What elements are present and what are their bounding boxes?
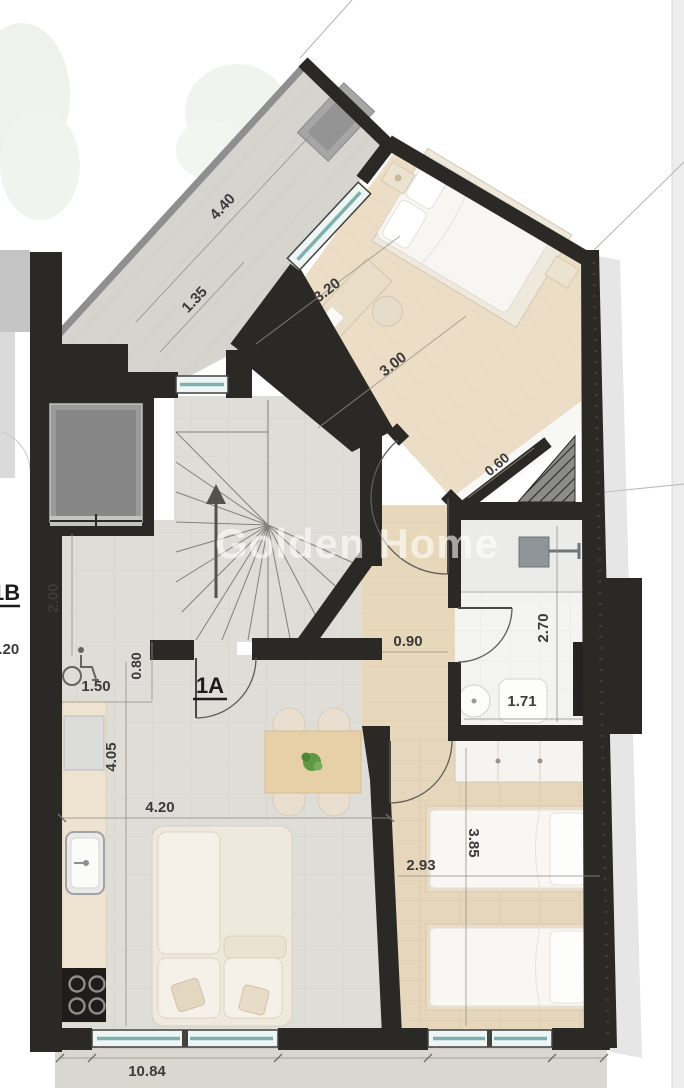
kitchen-sink bbox=[66, 832, 104, 894]
dim-bathroom-width: 1.71 bbox=[507, 693, 536, 710]
stairwell-window bbox=[176, 376, 228, 393]
dim-hall-length: 2.00 bbox=[45, 583, 62, 612]
dim-living-width: 4.20 bbox=[145, 799, 174, 816]
dim-bedroom2-width: 2.93 bbox=[406, 857, 435, 874]
bedroom2-window bbox=[428, 1030, 552, 1047]
single-bed bbox=[426, 924, 594, 1010]
dim-bathroom-length: 2.70 bbox=[535, 613, 552, 642]
unit-label-neighbor: 1B bbox=[0, 580, 20, 605]
dim-hall-opening: 0.80 bbox=[128, 652, 144, 679]
single-bed bbox=[426, 806, 594, 892]
fridge bbox=[64, 716, 104, 770]
watermark: Golden Home bbox=[215, 520, 499, 567]
wardrobe bbox=[455, 740, 583, 782]
hall-floor bbox=[62, 520, 237, 660]
kitchen bbox=[62, 700, 106, 1022]
neighbor-wall bbox=[0, 250, 30, 332]
floor-plan-canvas: 4.40 1.35 3.20 3.00 0.60 2.00 0.80 1.50 … bbox=[0, 0, 684, 1088]
neighbor-wall bbox=[0, 332, 15, 478]
washbasin bbox=[458, 685, 490, 717]
living-room-window bbox=[92, 1030, 278, 1047]
elevator bbox=[36, 392, 154, 536]
dim-living-height: 4.05 bbox=[103, 742, 120, 771]
unit-label-1a: 1A bbox=[196, 673, 224, 698]
dim-total-width: 10.84 bbox=[128, 1063, 166, 1080]
dim-corridor-width: 0.90 bbox=[393, 633, 422, 650]
floor-plan-drawing: 4.40 1.35 3.20 3.00 0.60 2.00 0.80 1.50 … bbox=[0, 0, 684, 1088]
sofa bbox=[152, 826, 292, 1026]
dim-neighbor: 1.20 bbox=[0, 641, 19, 658]
stove bbox=[62, 968, 106, 1022]
dim-bedroom2-length: 3.85 bbox=[465, 828, 482, 857]
